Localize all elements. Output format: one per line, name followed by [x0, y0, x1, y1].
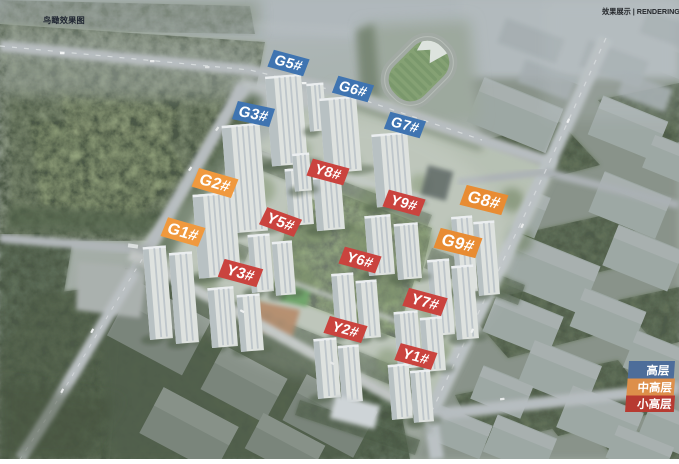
svg-text:效果展示 | RENDERING: 效果展示 | RENDERING [602, 7, 679, 16]
svg-text:高层: 高层 [646, 364, 670, 378]
svg-text:鸟瞰效果图: 鸟瞰效果图 [43, 15, 85, 25]
svg-text:小高层: 小高层 [636, 397, 673, 411]
svg-text:中高层: 中高层 [637, 381, 673, 395]
